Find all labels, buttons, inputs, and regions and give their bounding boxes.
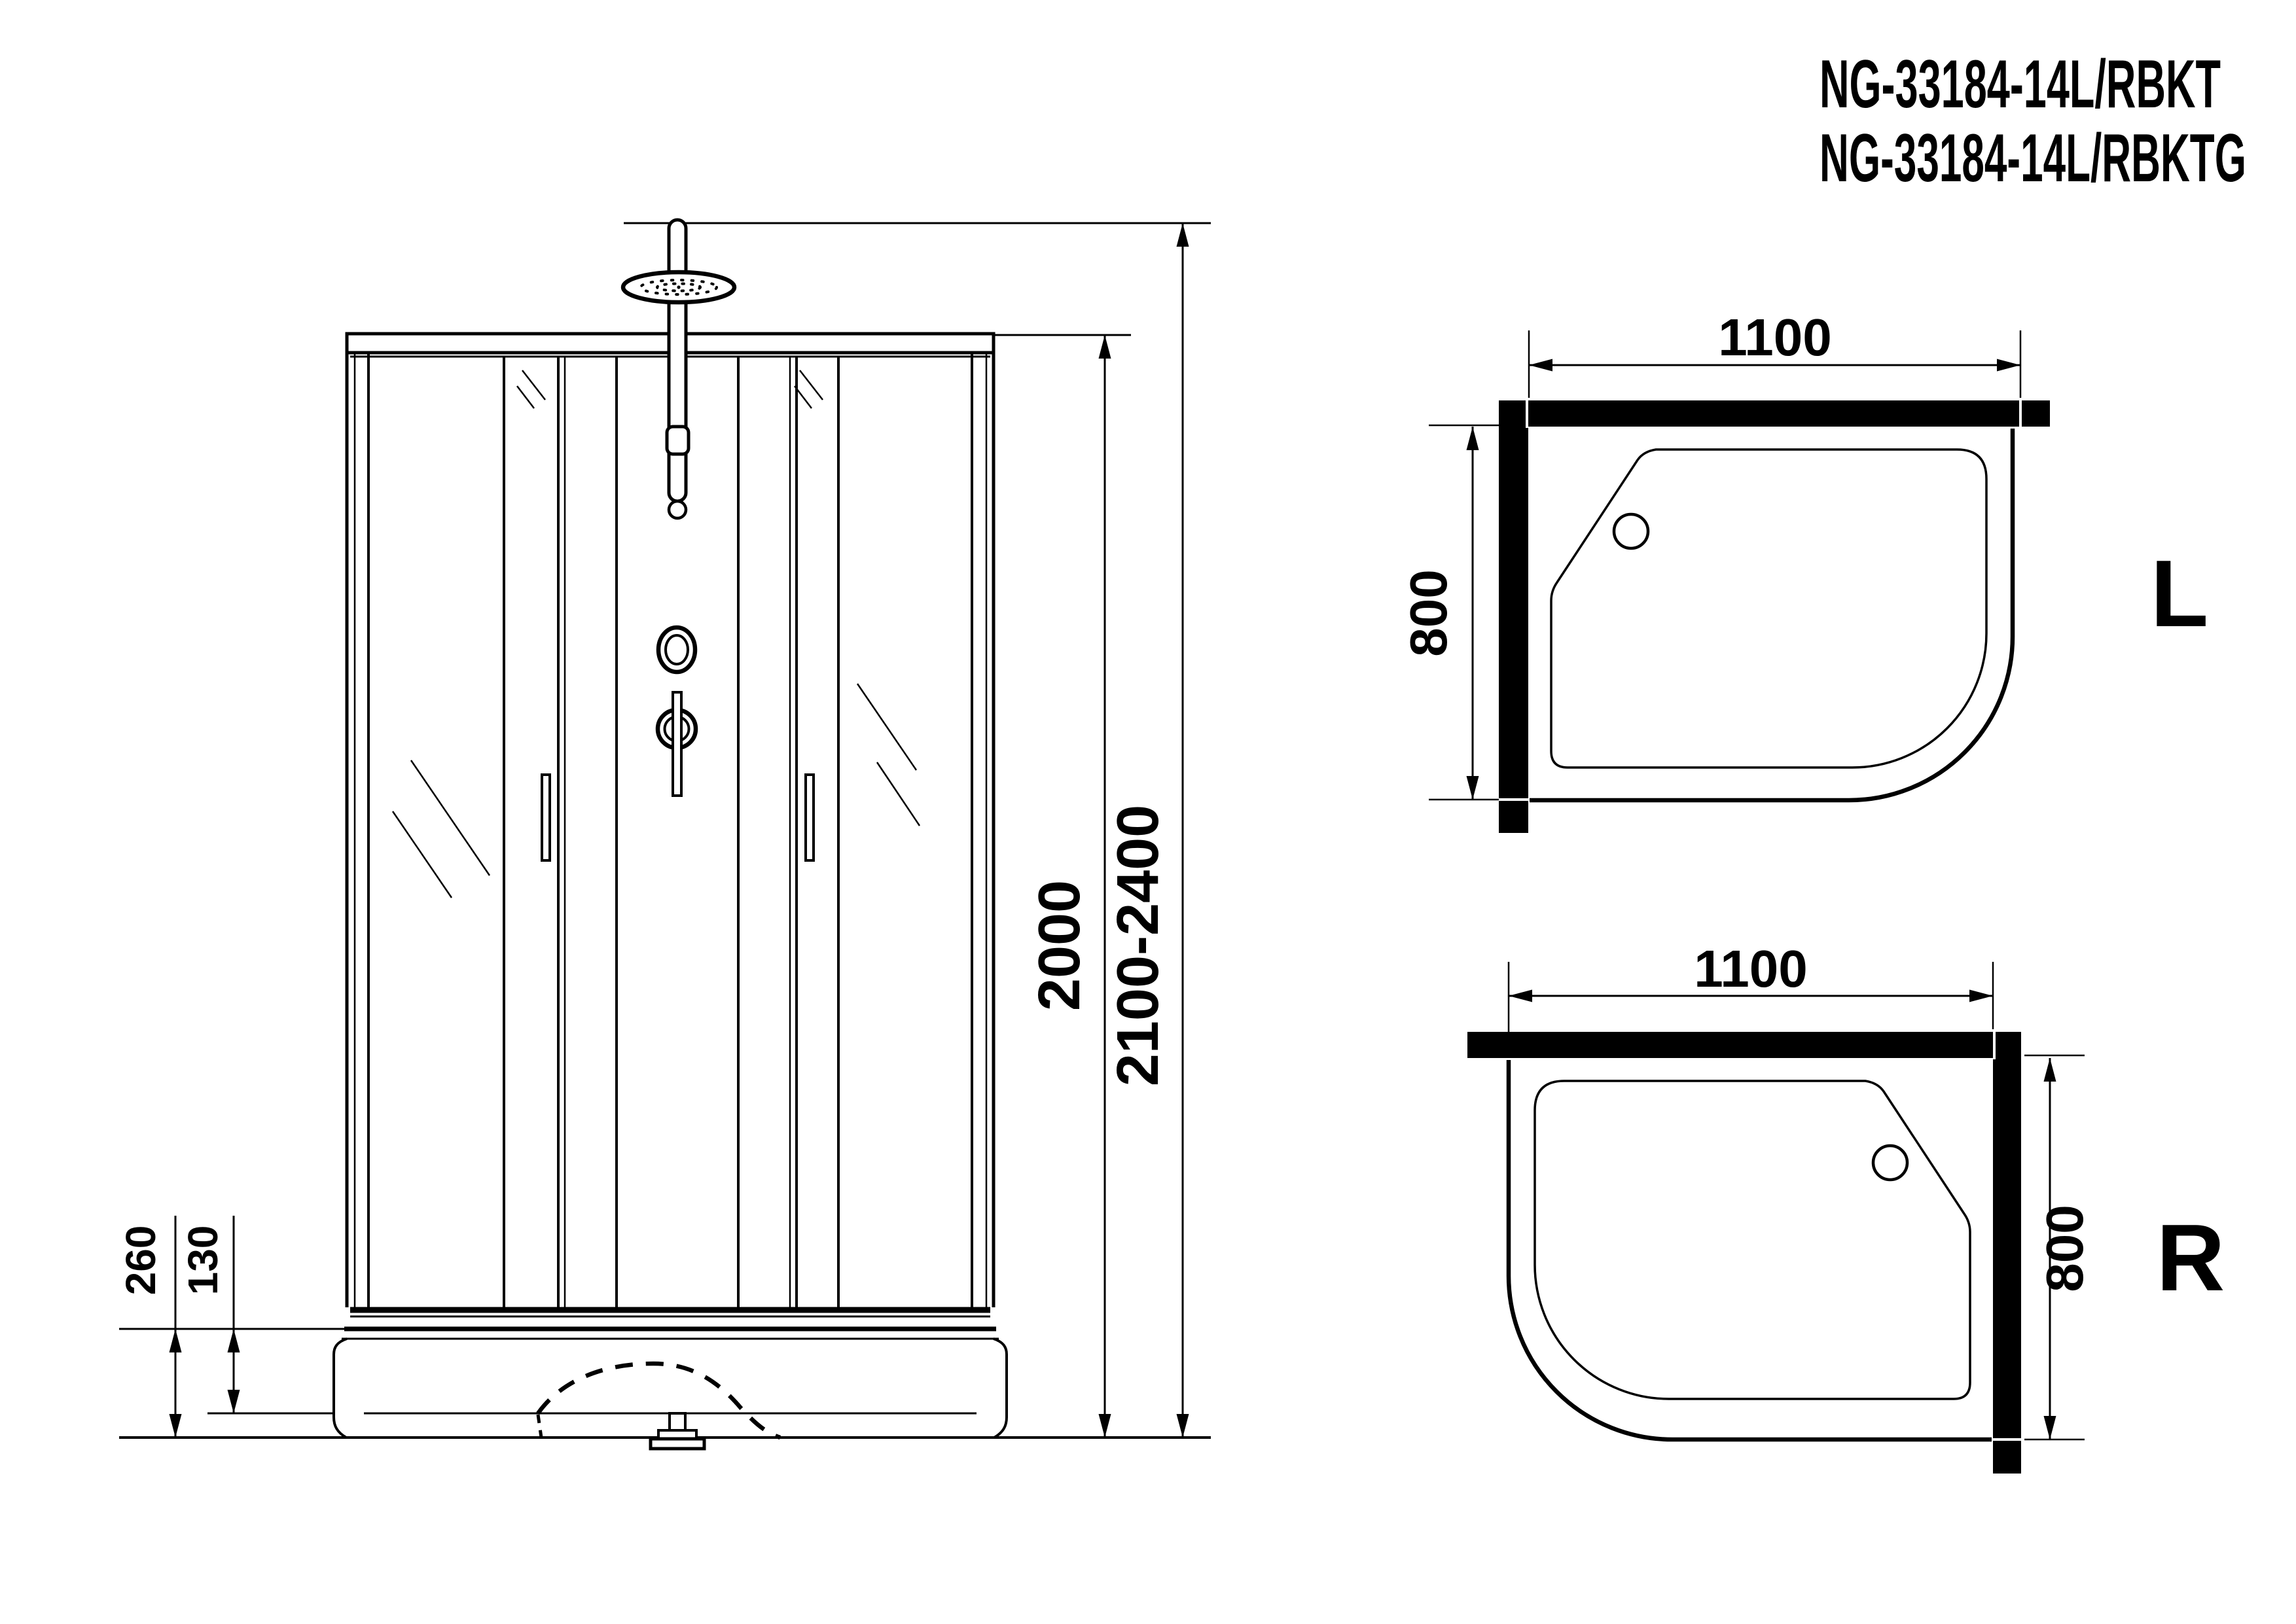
dimension-depth-r: 800 (2024, 1055, 2094, 1439)
drain-hole-l (1614, 514, 1648, 548)
wall-top-l (1499, 400, 2050, 427)
model-number-line-1: NG-33184-14L/RBKT (1820, 46, 2221, 122)
tray-inner-outline-r (1535, 1081, 1970, 1399)
front-elevation-view: 260 130 2000 2100-2400 (117, 220, 1211, 1449)
drain-trap-dashed-outline (538, 1364, 780, 1438)
dim-label-2000: 2000 (1027, 880, 1092, 1011)
model-number-line-2: NG-33184-14L/RBKTG (1820, 120, 2246, 196)
door-handle-left (542, 775, 550, 860)
orientation-letter-l: L (2151, 540, 2209, 646)
tray-outer-outline-r (1509, 1060, 1992, 1439)
hand-shower-slider (667, 427, 689, 454)
title-block: NG-33184-14L/RBKT NG-33184-14L/RBKTG (1820, 46, 2246, 196)
dimension-depth-l: 800 (1399, 425, 1499, 800)
dim-label-800-r: 800 (2036, 1205, 2094, 1292)
dimension-cabin-height: 2000 2100-2400 (1027, 223, 1183, 1438)
drain-trap-dashed-tick (538, 1415, 541, 1438)
dimension-width-l: 1100 (1529, 308, 2020, 398)
tray-skirt-right-edge (994, 1339, 1007, 1438)
mixer-lever (673, 692, 681, 796)
shower-mixer (658, 627, 696, 796)
wall-left-l (1499, 400, 1528, 833)
dim-label-1100-r: 1100 (1694, 940, 1808, 998)
technical-drawing-canvas: NG-33184-14L/RBKT NG-33184-14L/RBKTG (0, 0, 2296, 1624)
dim-label-130: 130 (179, 1226, 226, 1296)
dimension-tray-height: 260 130 (117, 1216, 344, 1438)
tray-inner-outline-l (1551, 450, 1986, 768)
dim-label-800-l: 800 (1399, 569, 1458, 656)
dim-label-1100-l: 1100 (1718, 308, 1832, 366)
plan-view-right: 1100 800 R (1467, 940, 2225, 1474)
hand-shower-hook (669, 501, 686, 518)
orientation-letter-r: R (2157, 1205, 2225, 1311)
dim-label-260: 260 (117, 1226, 164, 1296)
wall-right-r (1993, 1032, 2021, 1474)
glass-reflection-marks (393, 370, 920, 898)
shower-rod (669, 220, 686, 501)
dim-label-2100-2400: 2100-2400 (1105, 805, 1171, 1086)
wall-top-r (1467, 1032, 2021, 1058)
door-handle-right (806, 775, 814, 860)
tray-outer-outline-l (1530, 429, 2013, 800)
plan-view-left: 1100 800 L (1399, 308, 2208, 833)
drain-hole-r (1873, 1146, 1907, 1180)
drain-fitting (651, 1413, 704, 1449)
tray-skirt-left-edge (334, 1339, 347, 1438)
